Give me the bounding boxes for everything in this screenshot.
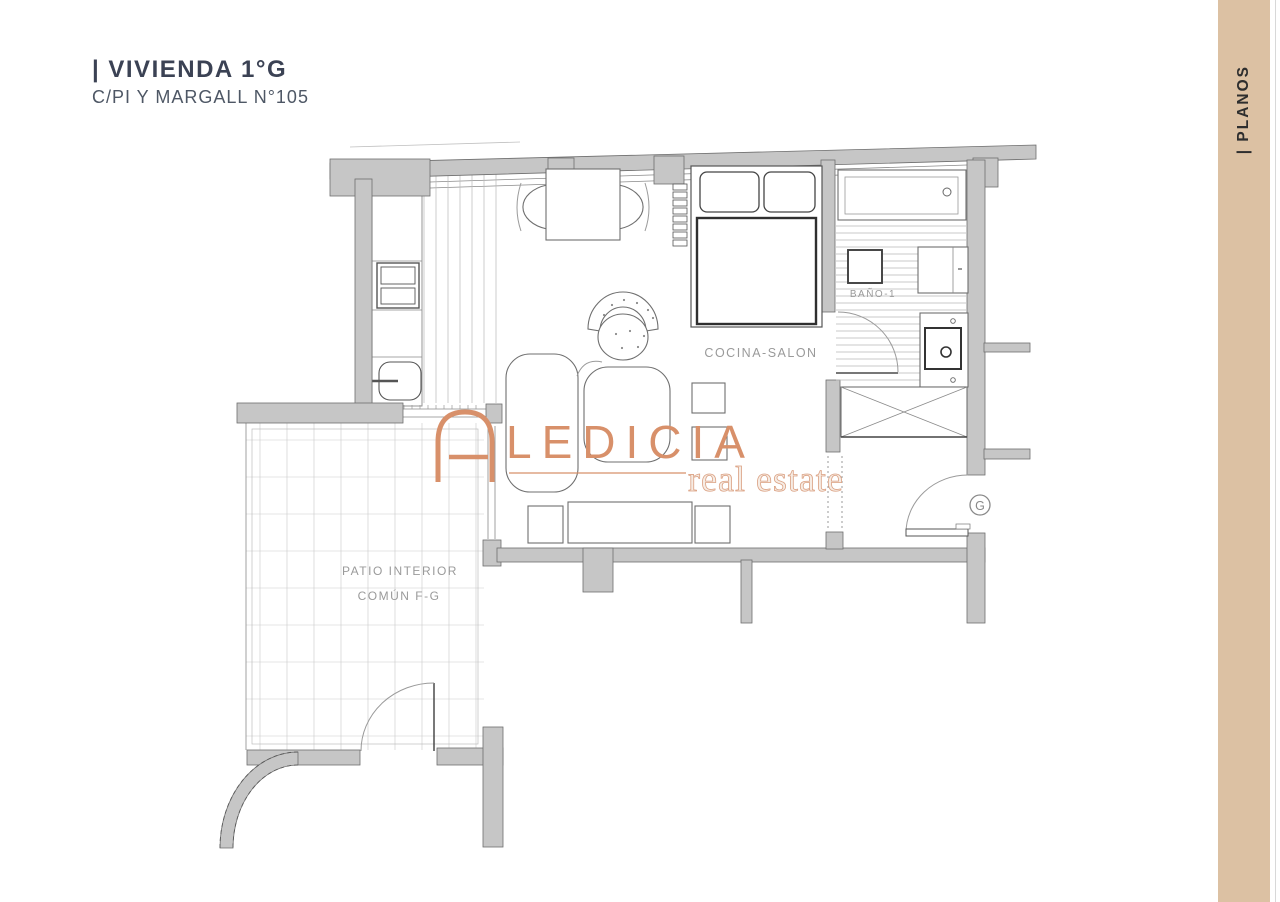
watermark-logo-icon — [438, 412, 492, 482]
planos-sidebar: | PLANOS — [1218, 0, 1270, 902]
side-table — [692, 383, 725, 413]
kitchen-floor-stripes — [424, 171, 496, 403]
entrance-door — [906, 475, 970, 536]
living-room-label: COCINA-SALON — [704, 346, 817, 360]
ventilation-shaft — [841, 387, 967, 437]
sidebar-label: | PLANOS — [1235, 65, 1253, 154]
bathroom-door — [836, 312, 898, 373]
washing-machine — [848, 250, 882, 283]
patio-grid — [246, 423, 484, 750]
pillow — [700, 172, 759, 212]
dining-chair-right — [619, 183, 649, 231]
tv-bench — [528, 502, 730, 543]
curved-wall — [220, 752, 298, 848]
patio-door — [361, 683, 434, 751]
entrance-label: G — [975, 499, 985, 513]
bed — [691, 166, 822, 327]
page-subtitle: C/PI Y MARGALL N°105 — [92, 87, 309, 108]
oven — [377, 263, 419, 308]
dining-table — [546, 169, 620, 240]
watermark: LEDICIA real estate — [438, 412, 844, 499]
mattress — [697, 218, 816, 324]
sidebar-label-wrap: | PLANOS — [1218, 40, 1270, 180]
patio-label-line1: PATIO INTERIOR — [342, 564, 458, 578]
page-header: | VIVIENDA 1°G C/PI Y MARGALL N°105 — [92, 56, 309, 108]
door-leaf — [906, 529, 968, 536]
patio-label-line2: COMÚN F-G — [358, 588, 441, 603]
dining-chair-left — [517, 183, 547, 231]
floor-plan: G COCINA-SALON BAÑO-1 PATIO INTERIOR COM… — [0, 0, 1280, 902]
bathtub — [838, 170, 966, 220]
facade-pillar — [654, 156, 684, 184]
exterior-walls — [237, 145, 1036, 847]
entrance-label-badge: G — [970, 495, 990, 515]
radiator — [673, 184, 687, 246]
toilet — [920, 313, 968, 387]
pillar — [583, 548, 613, 592]
bed-bath-wall — [821, 160, 835, 312]
pillow — [764, 172, 815, 212]
armchair — [588, 292, 658, 360]
plan-page: | VIVIENDA 1°G C/PI Y MARGALL N°105 | PL… — [0, 0, 1280, 902]
construction-line — [350, 142, 520, 147]
vanity — [918, 247, 968, 293]
page-title: | VIVIENDA 1°G — [92, 56, 309, 84]
watermark-tagline: real estate — [688, 459, 844, 499]
bathroom-label: BAÑO-1 — [850, 287, 896, 300]
